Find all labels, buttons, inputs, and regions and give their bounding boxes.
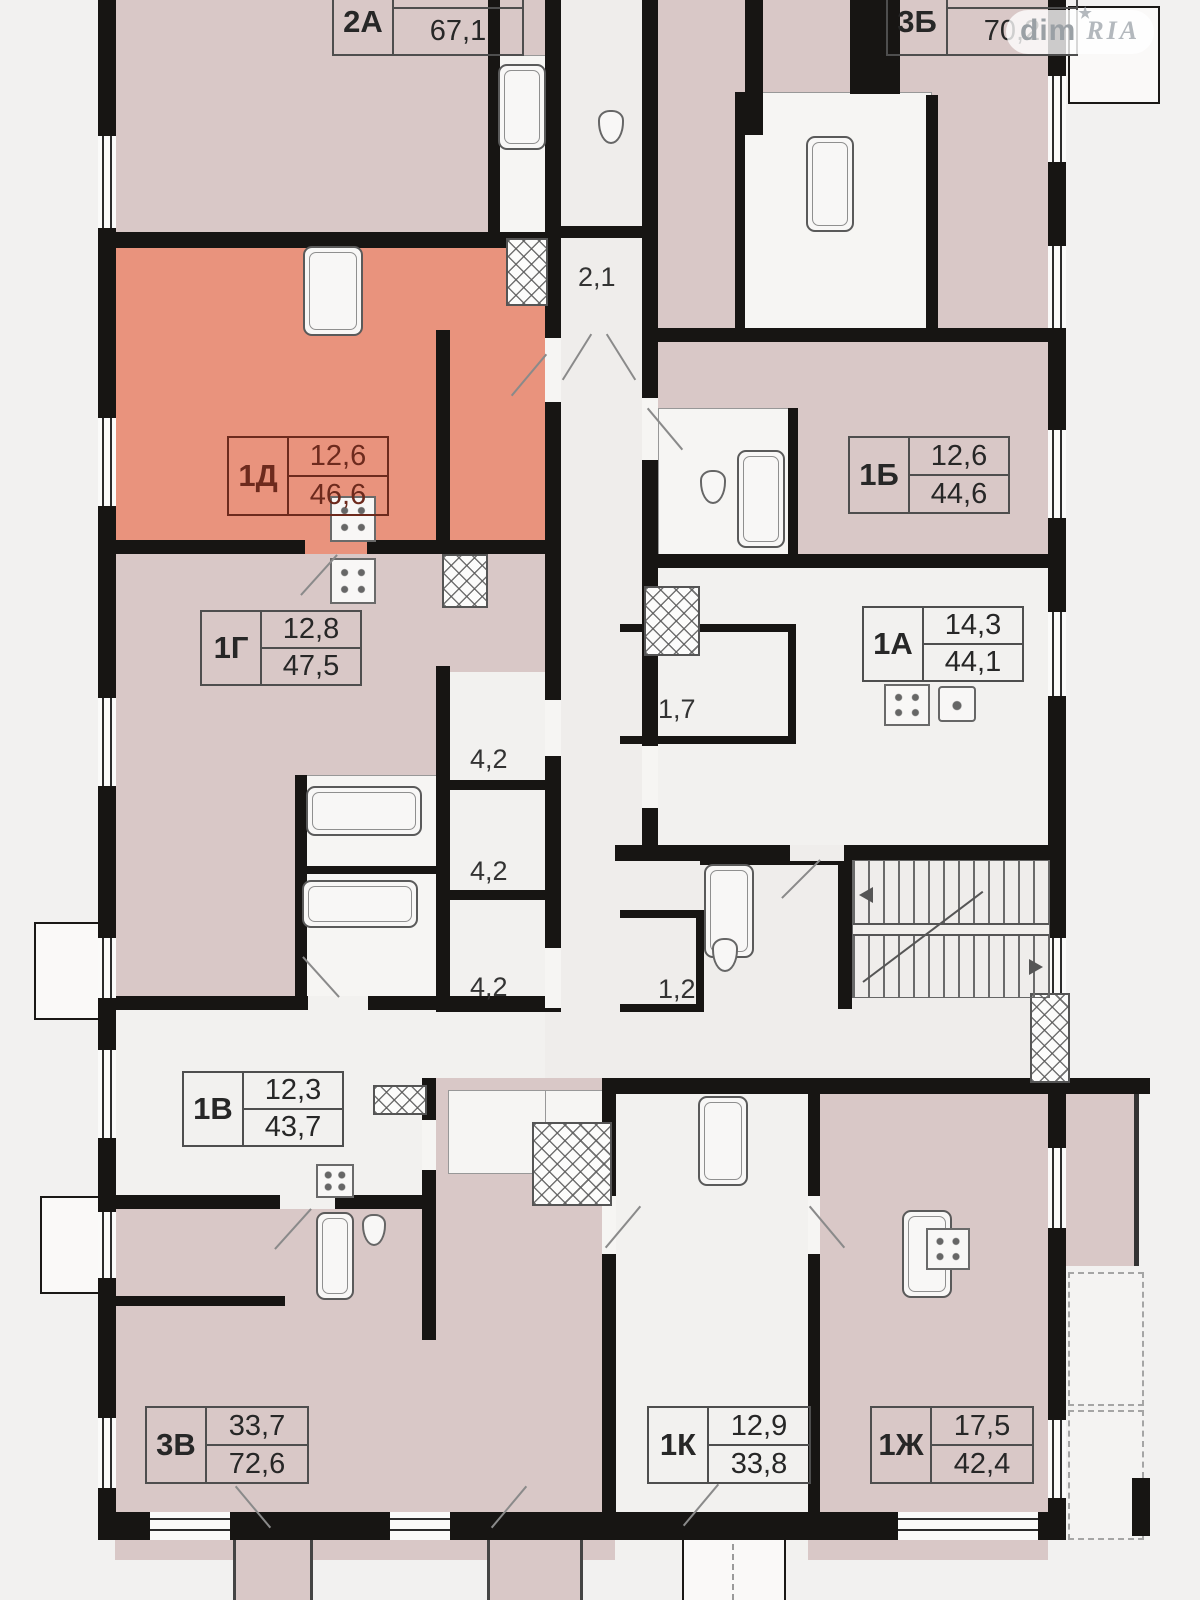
unit-label-1a[interactable]: 1А 14,3 44,1 [862,606,1024,682]
unit-living-area: 14,3 [924,608,1022,645]
bathtub-icon [306,786,422,836]
wall-segment [745,0,763,135]
unit-total-area: 43,7 [244,1110,342,1145]
wall-segment [620,736,796,744]
stove-icon [926,1228,970,1270]
sink-icon [938,686,976,722]
wall-vestibule-top [561,226,645,238]
window [98,136,116,228]
wall-segment [620,1004,702,1012]
room-area-label: 1,7 [658,694,696,725]
unit-name: 3В [147,1408,207,1482]
unit-label-1d-highlighted[interactable]: 1Д 12,6 46,6 [227,436,389,516]
balcony-bottom-1 [233,1540,313,1600]
wall-1b-1a [658,554,1048,568]
unit-name: 1Г [202,612,262,684]
window [1048,246,1066,328]
unit-total-area: 42,4 [932,1446,1032,1482]
unit-label-1b[interactable]: 1Б 12,6 44,6 [848,436,1010,514]
unit-living-area: 12,9 [709,1408,809,1446]
unit-label-1k[interactable]: 1К 12,9 33,8 [647,1406,811,1484]
window [98,1418,116,1488]
unit-name: 1Ж [872,1408,932,1482]
room-area-label: 1,2 [658,974,696,1005]
shaft-hatch [506,238,548,306]
wall-1v-3v [115,1195,435,1209]
wall-segment [436,780,546,790]
unit-total-area: 33,8 [709,1446,809,1482]
unit-living-area: 25,5 [394,0,522,9]
stove-icon [330,558,376,604]
window [898,1512,1038,1540]
stair-direction-line [862,891,983,983]
window [98,1050,116,1138]
shaft-hatch [373,1085,427,1115]
unit-label-3v[interactable]: 3В 33,7 72,6 [145,1406,309,1484]
stairs [852,860,1050,998]
stove-icon [884,684,930,726]
future-balcony-1 [1068,1272,1144,1406]
window [1048,1148,1066,1228]
door-opening [545,948,561,1008]
room-area-label: 2,1 [578,262,616,293]
unit-living-area: 12,3 [244,1073,342,1110]
wall-segment [295,866,445,874]
wall-segment [735,92,745,332]
window [1048,430,1066,518]
unit-name: 2А [334,0,394,54]
wall-outer-right [1048,0,1066,1534]
room-area-label: 4,2 [470,856,508,887]
unit-name: 1К [649,1408,709,1482]
unit-label-1v[interactable]: 1В 12,3 43,7 [182,1071,344,1147]
shaft-hatch [442,554,488,608]
window [98,418,116,506]
door-opening [790,845,844,861]
shaft-hatch [1030,993,1070,1083]
window [390,1512,450,1540]
window [150,1512,230,1540]
wall-segment [788,408,798,560]
door-opening [545,700,561,756]
bathtub-icon [498,64,546,150]
bathtub-icon [737,450,785,548]
unit-total-area: 46,6 [289,477,387,514]
unit-total-area: 47,5 [262,649,360,684]
wall-segment [422,1078,436,1340]
wall-segment [436,666,450,1012]
storage-rooms-area [448,672,545,1012]
wall-segment [115,1296,285,1306]
shaft-hatch [644,586,700,656]
unit-name: 1В [184,1073,244,1145]
door-opening [422,1120,436,1170]
window [1048,1420,1066,1498]
wall-wing-right [1134,1094,1139,1266]
unit-label-2a[interactable]: 2А 25,5 67,1 [332,0,524,56]
unit-living-area: 33,7 [207,1408,307,1446]
bathtub-icon [302,880,418,928]
door-opening [308,996,368,1010]
unit-living-area: 12,8 [262,612,360,649]
wall-corridor-left [545,0,561,1012]
unit-living-area: 17,5 [932,1408,1032,1446]
wall-segment [926,95,938,328]
watermark-dim-text: dim [1020,14,1076,48]
apartment-3v-area[interactable] [115,1206,615,1560]
stair-arrow-down-icon [1029,959,1043,975]
apartment-1zh-area[interactable] [808,1094,1048,1560]
balcony-divider-line [732,1534,734,1600]
unit-name: 1Д [229,438,289,514]
unit-living-area: 12,6 [910,438,1008,476]
stair-landing [853,923,1049,936]
balcony-bottom-2 [487,1540,583,1600]
watermark-star-icon: ★ [1078,4,1094,23]
bathtub-icon [698,1096,748,1186]
wall-segment [436,890,546,900]
unit-name: 3Б [888,0,948,54]
unit-total-area: 67,1 [394,9,522,54]
door-opening [642,746,658,808]
wall-3b-1b [658,328,1048,342]
balcony-bottom-3 [682,1532,786,1600]
wall-segment [788,624,796,744]
unit-total-area: 44,6 [910,476,1008,512]
wall-segment [1132,1478,1150,1536]
unit-name: 1Б [850,438,910,512]
door-opening [642,398,658,460]
bathtub-icon [806,136,854,232]
unit-total-area: 44,1 [924,645,1022,680]
unit-living-area: 12,6 [289,438,387,477]
wing-room-area [1066,1094,1136,1266]
stair-arrow-up-icon [859,887,873,903]
door-opening [545,338,561,402]
bathtub-icon [316,1212,354,1300]
window [1048,612,1066,696]
balcony-left-1 [34,922,108,1020]
door-opening [305,540,367,554]
bathtub-icon [303,246,363,336]
unit-living-area: 33,7 [948,0,1076,9]
room-area-label: 4,2 [470,744,508,775]
watermark-ria-text: ★RIA [1086,16,1140,46]
watermark: dim ★RIA [1006,10,1154,54]
wall-segment [436,330,450,552]
stove-icon [316,1164,354,1198]
balcony-door [98,938,116,998]
balcony-door [98,1212,116,1278]
unit-label-1g[interactable]: 1Г 12,8 47,5 [200,610,362,686]
wall-stair-left [838,861,852,1009]
room-area-label: 4,2 [470,972,508,1003]
unit-label-1zh[interactable]: 1Ж 17,5 42,4 [870,1406,1034,1484]
unit-name: 1А [864,608,924,680]
shaft-hatch [532,1122,612,1206]
apartment-1a-area[interactable] [658,560,1048,856]
floor-plan: 2А 25,5 67,1 3Б 33,7 70,2 1Д 12,6 46,6 1… [0,0,1200,1600]
window [1048,76,1066,162]
wall-segment [696,910,704,1012]
window [98,698,116,786]
wall-segment [620,910,702,918]
unit-total-area: 72,6 [207,1446,307,1482]
